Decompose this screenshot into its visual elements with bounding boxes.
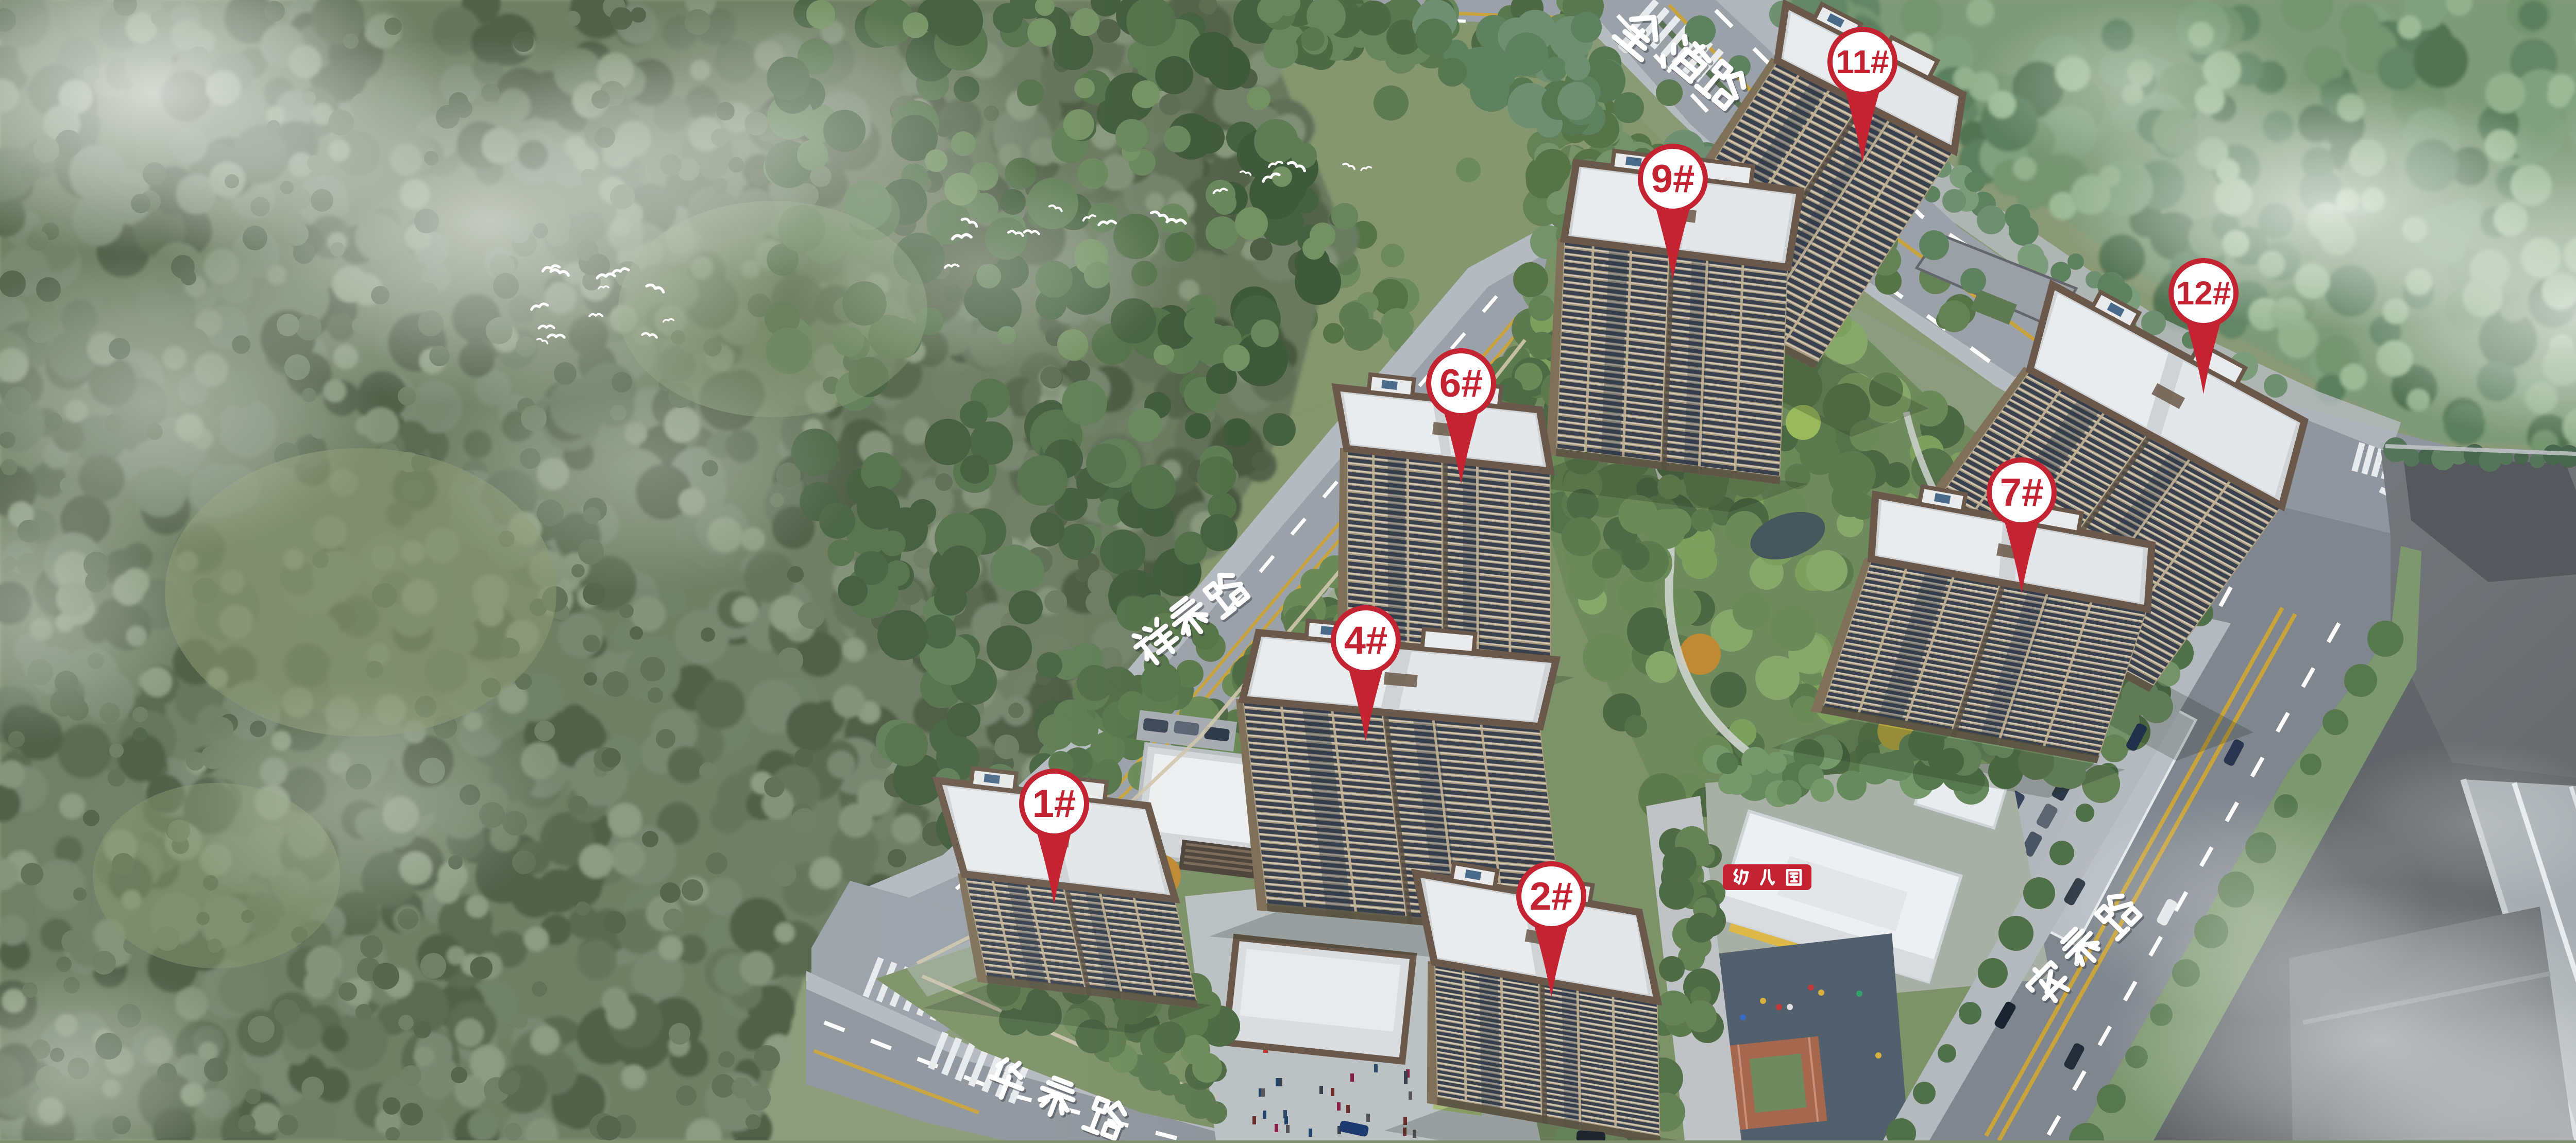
svg-text:7#: 7#	[2000, 471, 2044, 515]
svg-text:2#: 2#	[1530, 875, 1573, 918]
svg-text:11#: 11#	[1836, 43, 1889, 80]
svg-text:6#: 6#	[1439, 362, 1483, 405]
svg-text:12#: 12#	[2176, 275, 2231, 312]
svg-text:1#: 1#	[1032, 782, 1076, 826]
svg-text:4#: 4#	[1344, 619, 1388, 662]
svg-text:9#: 9#	[1651, 157, 1695, 201]
